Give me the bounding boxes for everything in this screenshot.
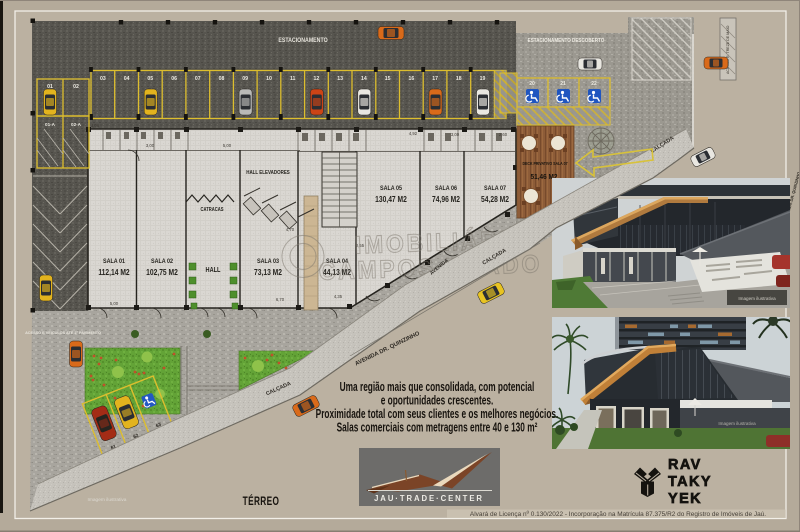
svg-text:3,00: 3,00 <box>146 143 155 148</box>
svg-text:SALA 01: SALA 01 <box>103 259 126 266</box>
svg-text:JAU·TRADE·CENTER: JAU·TRADE·CENTER <box>374 494 484 503</box>
svg-text:03: 03 <box>100 76 106 82</box>
svg-text:21: 21 <box>560 81 566 87</box>
svg-text:5,00: 5,00 <box>223 143 232 148</box>
svg-text:Imagem ilustrativa: Imagem ilustrativa <box>738 296 776 301</box>
svg-text:05: 05 <box>147 76 153 82</box>
svg-text:Alvará de Licença nº 0.130/202: Alvará de Licença nº 0.130/2022 - Incorp… <box>470 511 766 518</box>
svg-text:22: 22 <box>591 81 597 87</box>
svg-text:20: 20 <box>529 81 535 87</box>
svg-text:CATRACAS: CATRACAS <box>201 207 224 213</box>
svg-text:19: 19 <box>480 76 486 82</box>
svg-text:15: 15 <box>385 76 391 82</box>
svg-text:74,96 M2: 74,96 M2 <box>432 194 460 204</box>
svg-text:02: 02 <box>73 84 79 90</box>
svg-text:3,00: 3,00 <box>451 132 460 137</box>
svg-text:ACESSO E VEICULOS ATÉ 2º PAVIM: ACESSO E VEICULOS ATÉ 2º PAVIMENTO <box>25 330 101 335</box>
svg-text:HALL: HALL <box>206 266 221 274</box>
svg-text:HALL ELEVADORES: HALL ELEVADORES <box>246 170 290 177</box>
svg-text:18: 18 <box>456 76 462 82</box>
svg-text:01-A: 01-A <box>45 122 56 127</box>
svg-text:130,47 M2: 130,47 M2 <box>375 194 407 204</box>
svg-text:112,14 M2: 112,14 M2 <box>98 267 129 277</box>
svg-text:e oportunidades crescentes.: e oportunidades crescentes. <box>381 394 494 408</box>
svg-text:YEK: YEK <box>668 491 702 507</box>
svg-text:TAKY: TAKY <box>668 474 712 490</box>
svg-text:3,05: 3,05 <box>91 123 100 128</box>
svg-text:10: 10 <box>266 76 272 82</box>
svg-text:17: 17 <box>432 76 438 82</box>
svg-text:73,13 M2: 73,13 M2 <box>254 267 282 277</box>
svg-text:2,60: 2,60 <box>499 132 508 137</box>
svg-text:14: 14 <box>361 76 367 82</box>
svg-text:SALA 06: SALA 06 <box>435 186 458 193</box>
svg-text:SALA 03: SALA 03 <box>257 259 280 266</box>
svg-text:13: 13 <box>337 76 343 82</box>
svg-text:Proximidade total com seus cli: Proximidade total com seus clientes e os… <box>316 407 559 421</box>
svg-text:4,92: 4,92 <box>409 131 418 136</box>
svg-text:08: 08 <box>219 76 225 82</box>
svg-text:6,70: 6,70 <box>276 297 285 302</box>
svg-text:4,35: 4,35 <box>334 294 343 299</box>
svg-text:102,75 M2: 102,75 M2 <box>146 267 178 277</box>
svg-text:12: 12 <box>314 76 320 82</box>
svg-text:04: 04 <box>124 76 130 82</box>
svg-text:16: 16 <box>409 76 415 82</box>
svg-text:Uma região mais que consolidad: Uma região mais que consolidada, com pot… <box>340 380 535 394</box>
svg-text:5,00: 5,00 <box>110 301 119 306</box>
svg-text:SALA 05: SALA 05 <box>380 186 403 193</box>
svg-text:SALA 02: SALA 02 <box>151 259 174 266</box>
svg-text:11: 11 <box>290 76 296 82</box>
svg-text:TÉRREO: TÉRREO <box>243 494 280 509</box>
svg-text:06: 06 <box>171 76 177 82</box>
svg-text:4,70: 4,70 <box>286 227 295 232</box>
svg-text:ESTACIONAMENTO DESCOBERTO: ESTACIONAMENTO DESCOBERTO <box>528 38 605 45</box>
svg-text:ESTACIONAMENTO: ESTACIONAMENTO <box>278 38 328 45</box>
svg-text:SALA 07: SALA 07 <box>484 186 507 193</box>
svg-text:Imagem ilustrativa: Imagem ilustrativa <box>718 421 756 426</box>
svg-text:RAV: RAV <box>668 457 702 473</box>
svg-text:02-A: 02-A <box>71 122 82 127</box>
svg-text:07: 07 <box>195 76 201 82</box>
svg-text:Salas comerciais com metragens: Salas comerciais com metragens entre 40 … <box>337 421 538 435</box>
svg-text:09: 09 <box>242 76 248 82</box>
svg-text:Imagem ilustrativa: Imagem ilustrativa <box>88 497 127 503</box>
svg-text:54,28 M2: 54,28 M2 <box>481 194 509 204</box>
svg-text:DECK PRIVATIVO SALA 07: DECK PRIVATIVO SALA 07 <box>522 161 567 166</box>
